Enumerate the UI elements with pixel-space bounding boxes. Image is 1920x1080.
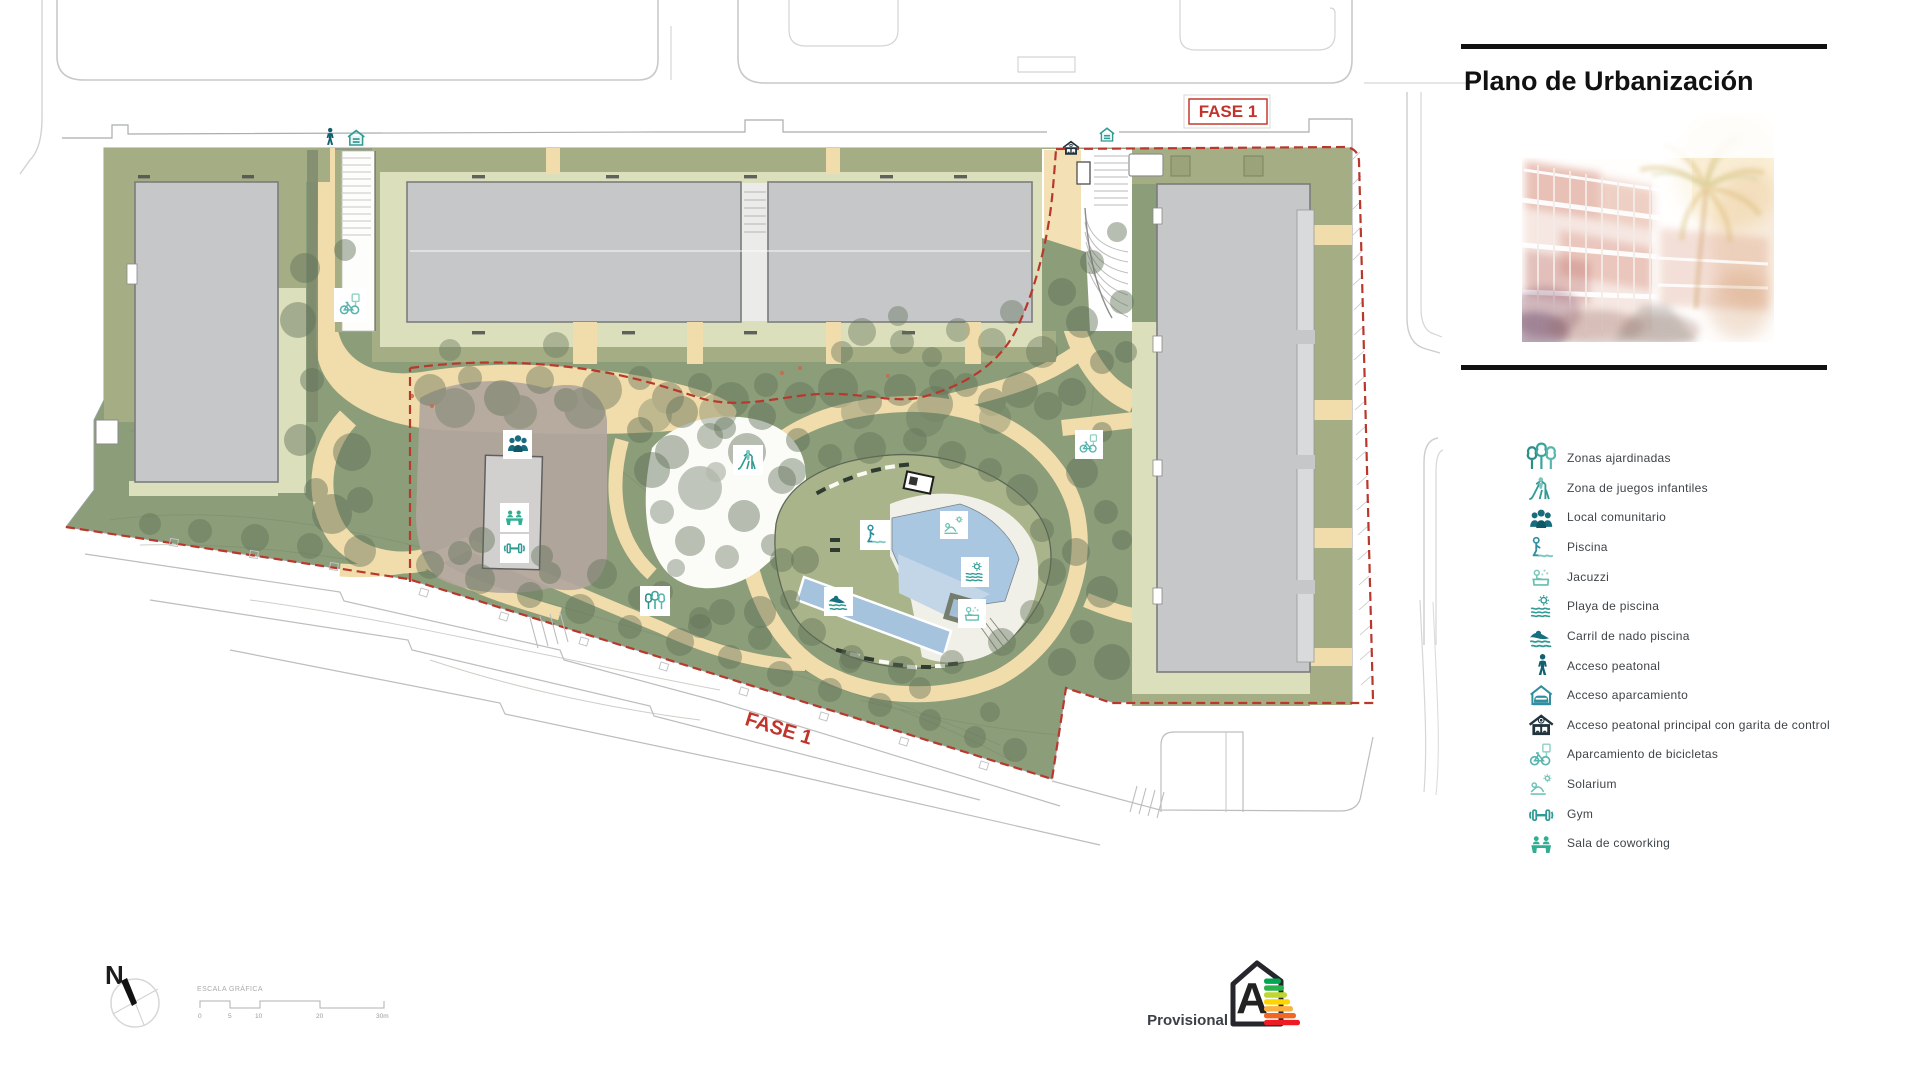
svg-text:Acceso peatonal: Acceso peatonal xyxy=(1567,659,1660,673)
svg-text:Gym: Gym xyxy=(1567,807,1593,821)
svg-text:Local comunitario: Local comunitario xyxy=(1567,510,1666,524)
svg-text:Zonas ajardinadas: Zonas ajardinadas xyxy=(1567,451,1671,465)
svg-text:Acceso peatonal principal con: Acceso peatonal principal con garita de … xyxy=(1567,718,1830,732)
svg-text:Piscina: Piscina xyxy=(1567,540,1608,554)
svg-text:20: 20 xyxy=(316,1013,324,1020)
svg-text:Aparcamiento de bicicletas: Aparcamiento de bicicletas xyxy=(1567,747,1718,761)
svg-text:Playa de piscina: Playa de piscina xyxy=(1567,599,1659,613)
svg-text:N: N xyxy=(105,960,124,990)
svg-text:Jacuzzi: Jacuzzi xyxy=(1567,570,1609,584)
svg-text:Zona de juegos infantiles: Zona de juegos infantiles xyxy=(1567,481,1708,495)
svg-text:Solarium: Solarium xyxy=(1567,777,1617,791)
svg-text:Sala de coworking: Sala de coworking xyxy=(1567,836,1670,850)
svg-text:0: 0 xyxy=(198,1013,202,1020)
svg-text:FASE 1: FASE 1 xyxy=(1199,102,1258,121)
svg-text:Provisional: Provisional xyxy=(1147,1012,1228,1029)
svg-text:A: A xyxy=(1236,974,1268,1023)
svg-text:ESCALA GRÁFICA: ESCALA GRÁFICA xyxy=(197,984,263,993)
svg-text:30m: 30m xyxy=(376,1013,389,1020)
svg-text:10: 10 xyxy=(255,1013,263,1020)
svg-text:5: 5 xyxy=(228,1013,232,1020)
svg-text:Carril de nado piscina: Carril de nado piscina xyxy=(1567,629,1690,643)
svg-text:Plano de Urbanización: Plano de Urbanización xyxy=(1464,66,1754,96)
svg-text:Acceso aparcamiento: Acceso aparcamiento xyxy=(1567,688,1688,702)
